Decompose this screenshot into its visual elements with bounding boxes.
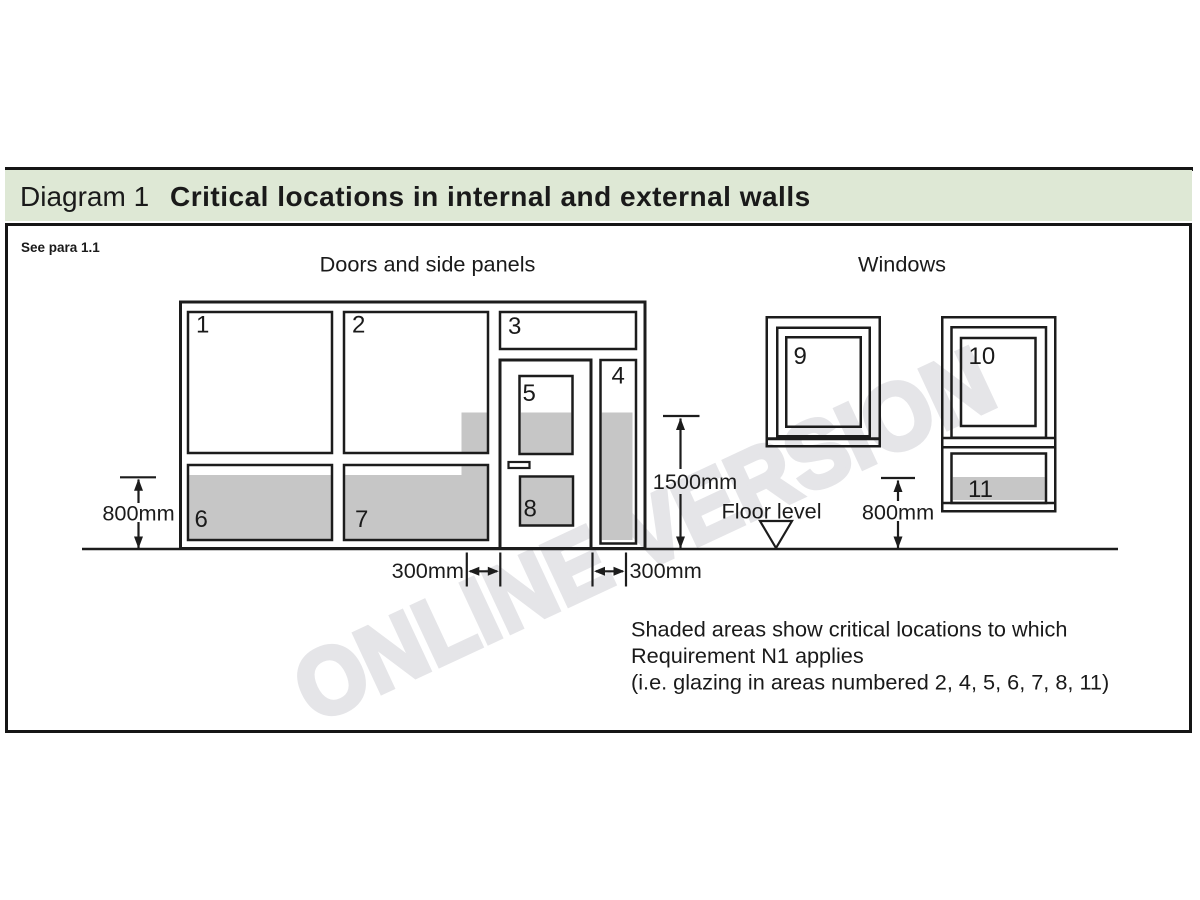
svg-text:11: 11: [968, 476, 993, 503]
svg-text:5: 5: [523, 380, 536, 407]
svg-text:Floor level: Floor level: [722, 499, 822, 524]
svg-text:3: 3: [508, 313, 521, 340]
svg-text:Windows: Windows: [858, 252, 946, 277]
svg-text:8: 8: [524, 496, 537, 523]
svg-text:See para 1.1: See para 1.1: [21, 240, 100, 255]
svg-text:6: 6: [195, 506, 208, 533]
svg-text:9: 9: [794, 343, 807, 370]
svg-text:2: 2: [352, 312, 365, 339]
svg-text:10: 10: [969, 343, 996, 370]
svg-text:Requirement N1 applies: Requirement N1 applies: [631, 643, 864, 668]
svg-text:7: 7: [355, 506, 368, 533]
svg-text:(i.e. glazing in areas numbere: (i.e. glazing in areas numbered 2, 4, 5,…: [631, 670, 1109, 695]
svg-text:1500mm: 1500mm: [653, 469, 737, 494]
svg-text:1: 1: [196, 312, 209, 339]
svg-text:Shaded areas show critical loc: Shaded areas show critical locations to …: [631, 617, 1067, 642]
svg-text:300mm: 300mm: [630, 558, 702, 583]
svg-text:Doors and side panels: Doors and side panels: [320, 252, 536, 277]
svg-text:300mm: 300mm: [392, 558, 464, 583]
svg-text:4: 4: [612, 363, 625, 390]
svg-text:800mm: 800mm: [862, 500, 934, 525]
svg-text:800mm: 800mm: [102, 501, 174, 526]
